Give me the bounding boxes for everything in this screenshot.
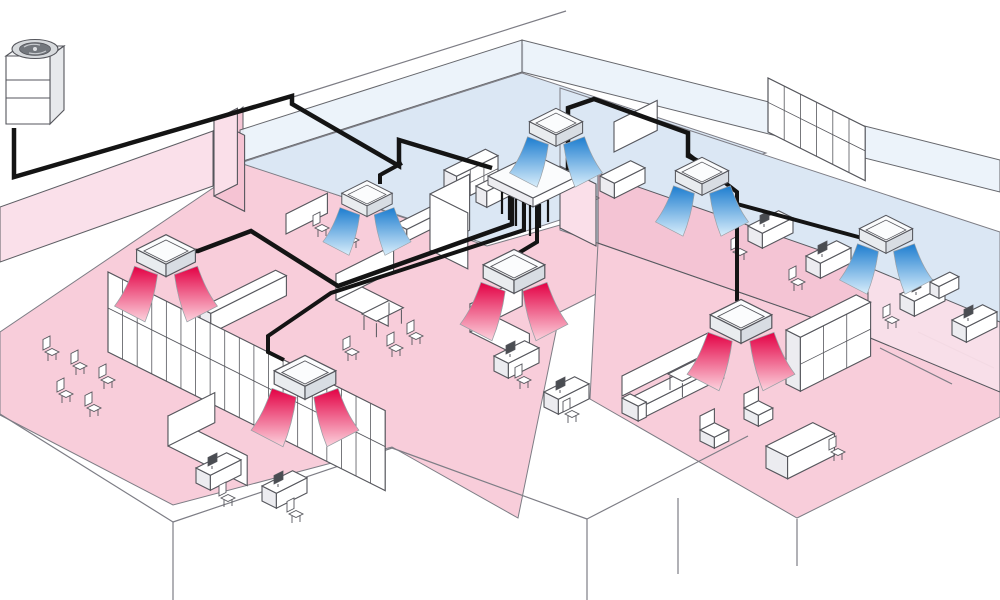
furniture-chair xyxy=(287,498,303,523)
diagram-canvas xyxy=(0,0,1000,600)
outdoor-condenser-unit xyxy=(6,40,64,125)
furniture-panel xyxy=(214,108,237,196)
outdoor-unit xyxy=(6,40,64,125)
hvac-office-isometric-diagram xyxy=(0,0,1000,600)
edge-line xyxy=(587,436,748,519)
